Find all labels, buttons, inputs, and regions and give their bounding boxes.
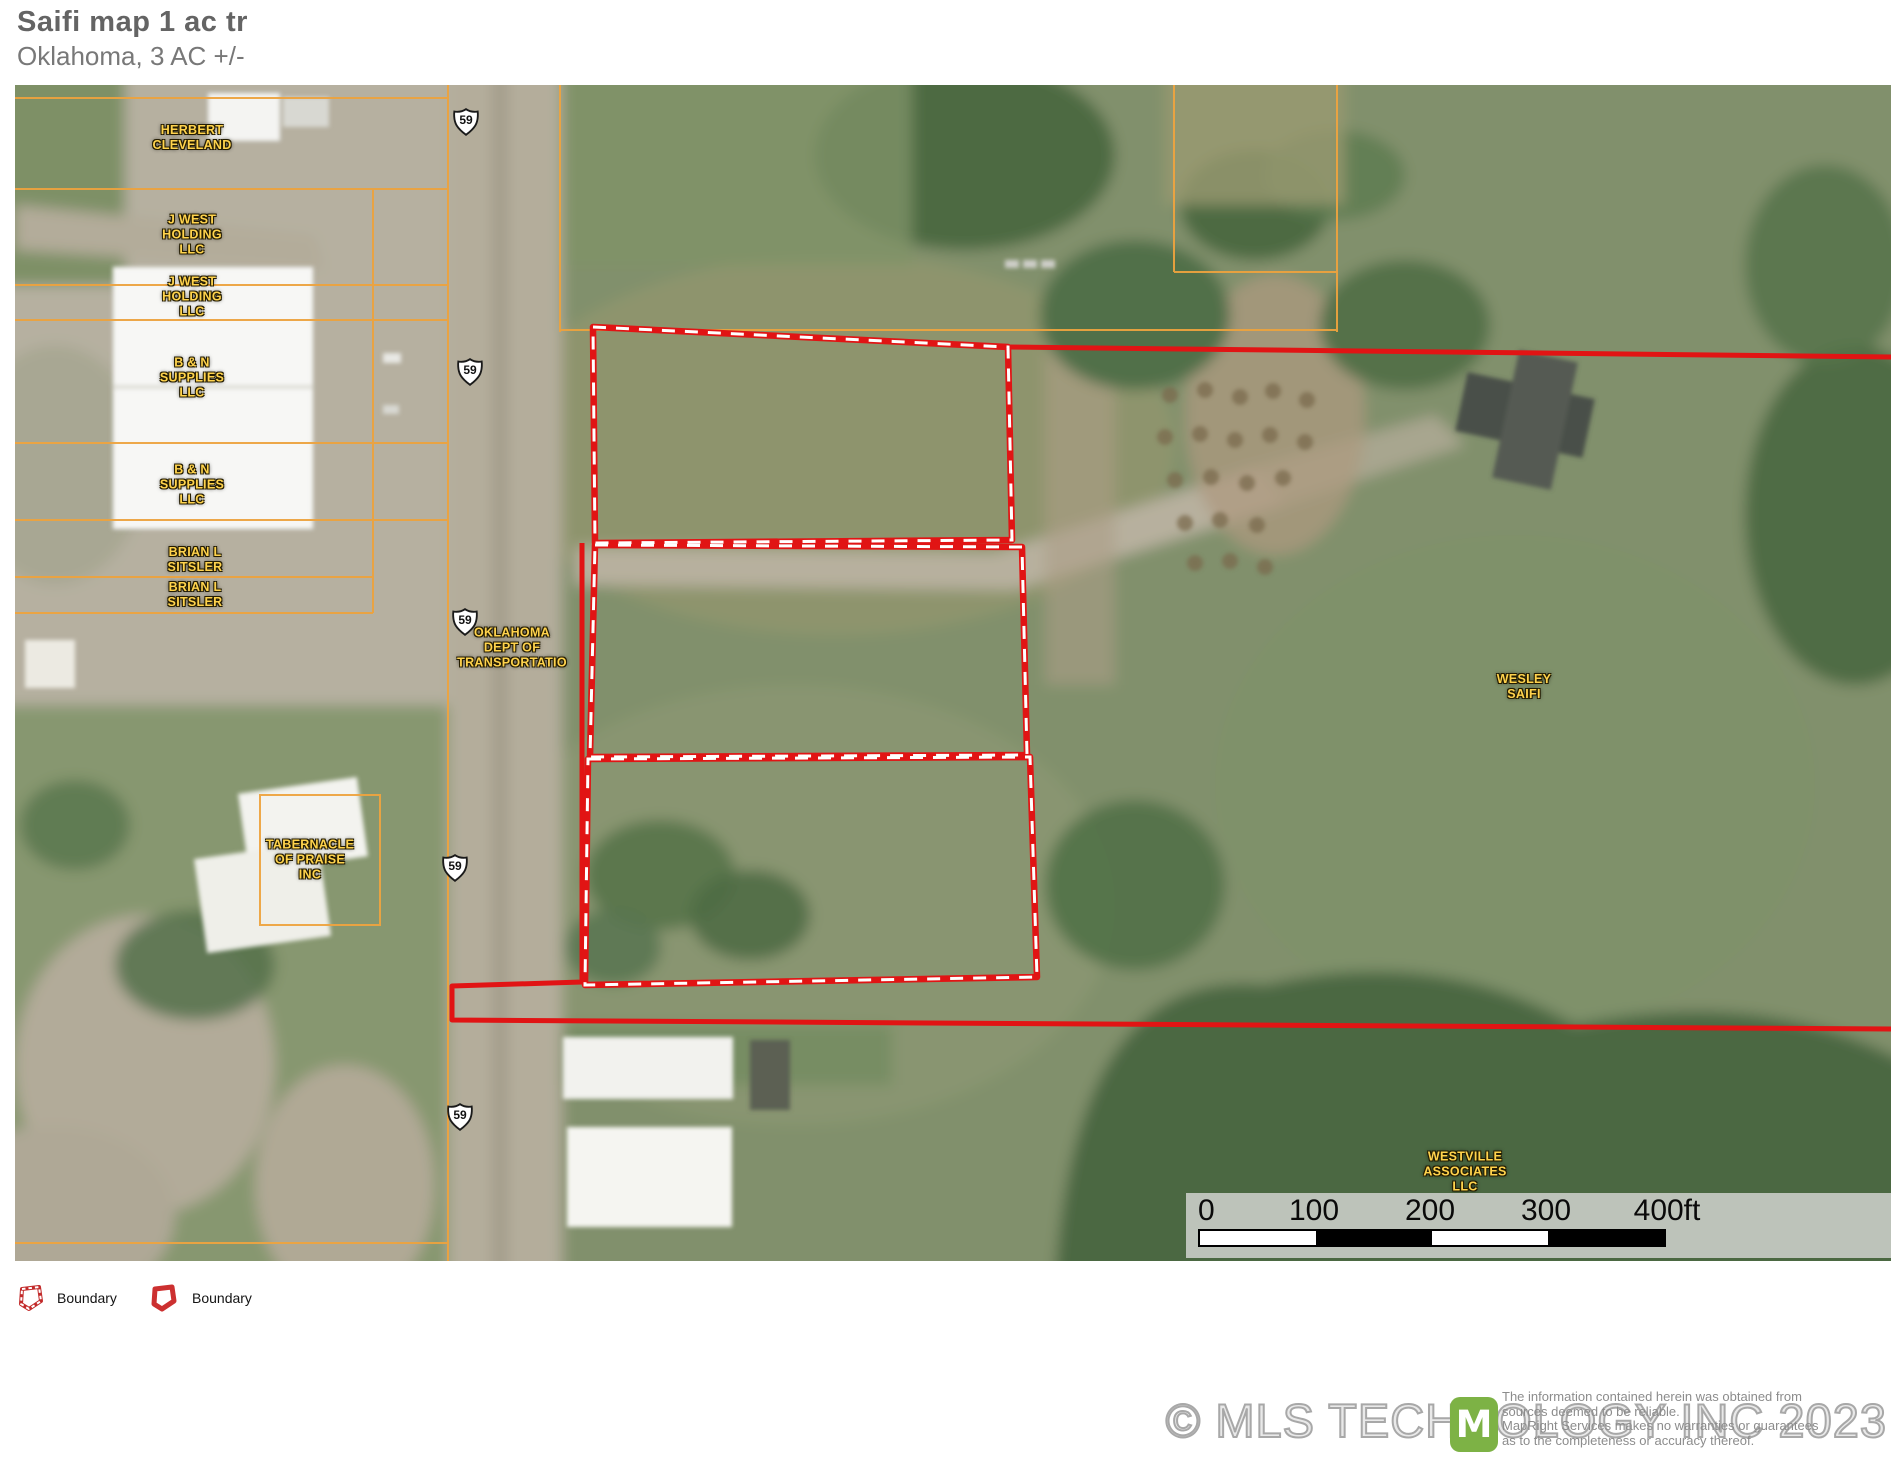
terrain-layer [15,85,1891,1261]
parcel-label-tabernacle: TABERNACLE OF PRAISE INC [266,838,354,883]
parcel-label-b-n-supplies-2: B & N SUPPLIES LLC [160,463,224,508]
highway-59-shield-icon: 59 [450,608,480,636]
header: Saifi map 1 ac tr Oklahoma, 3 AC +/- [17,6,248,72]
disclaimer-text: The information contained herein was obt… [1502,1390,1891,1448]
map-report-page: Saifi map 1 ac tr Oklahoma, 3 AC +/- [0,0,1891,1461]
disclaimer-line: as to the completeness or accuracy there… [1502,1434,1891,1449]
aerial-imagery [15,85,1891,1261]
disclaimer-line: MapRight Services makes no warranties or… [1502,1419,1891,1434]
mapright-logo: M [1450,1397,1498,1452]
parcel-label-j-west-holding-2: J WEST HOLDING LLC [162,275,222,320]
parcel-label-j-west-holding-1: J WEST HOLDING LLC [162,213,222,258]
legend-label-boundary-solid: Boundary [192,1290,252,1306]
scale-tick-label: 100 [1289,1194,1339,1228]
scale-bar: 0 100 200 300 400ft [1186,1193,1891,1258]
map-canvas: HERBERT CLEVELAND J WEST HOLDING LLC J W… [15,85,1891,1261]
scale-tick-label: 300 [1521,1194,1571,1228]
highway-59-shield-icon: 59 [445,1103,475,1131]
parcel-label-brian-sitsler-1: BRIAN L SITSLER [168,545,223,575]
disclaimer-line: sources deemed to be reliable. [1502,1405,1891,1420]
scale-bar-segments [1198,1229,1666,1247]
page-subtitle: Oklahoma, 3 AC +/- [17,41,248,72]
scale-tick-label: 0 [1198,1194,1215,1228]
highway-59-shield-icon: 59 [440,854,470,882]
parcel-label-herbert-cleveland: HERBERT CLEVELAND [152,123,231,153]
legend-label-boundary-dashed: Boundary [57,1290,117,1306]
mapright-logo-letter: M [1456,1403,1493,1446]
highway-59-shield-icon: 59 [451,108,481,136]
boundary-dashed-icon [15,1283,45,1313]
disclaimer-line: The information contained herein was obt… [1502,1390,1891,1405]
scale-tick-label: 200 [1405,1194,1455,1228]
page-title: Saifi map 1 ac tr [17,6,248,39]
scale-tick-label: 400ft [1634,1194,1701,1228]
parcel-label-brian-sitsler-2: BRIAN L SITSLER [168,580,223,610]
parcel-label-wesley-saifi: WESLEY SAIFI [1497,672,1552,702]
parcel-label-westville: WESTVILLE ASSOCIATES LLC [1423,1150,1506,1195]
highway-59-shield-icon: 59 [455,358,485,386]
boundary-solid-icon [148,1283,178,1313]
parcel-label-b-n-supplies-1: B & N SUPPLIES LLC [160,356,224,401]
